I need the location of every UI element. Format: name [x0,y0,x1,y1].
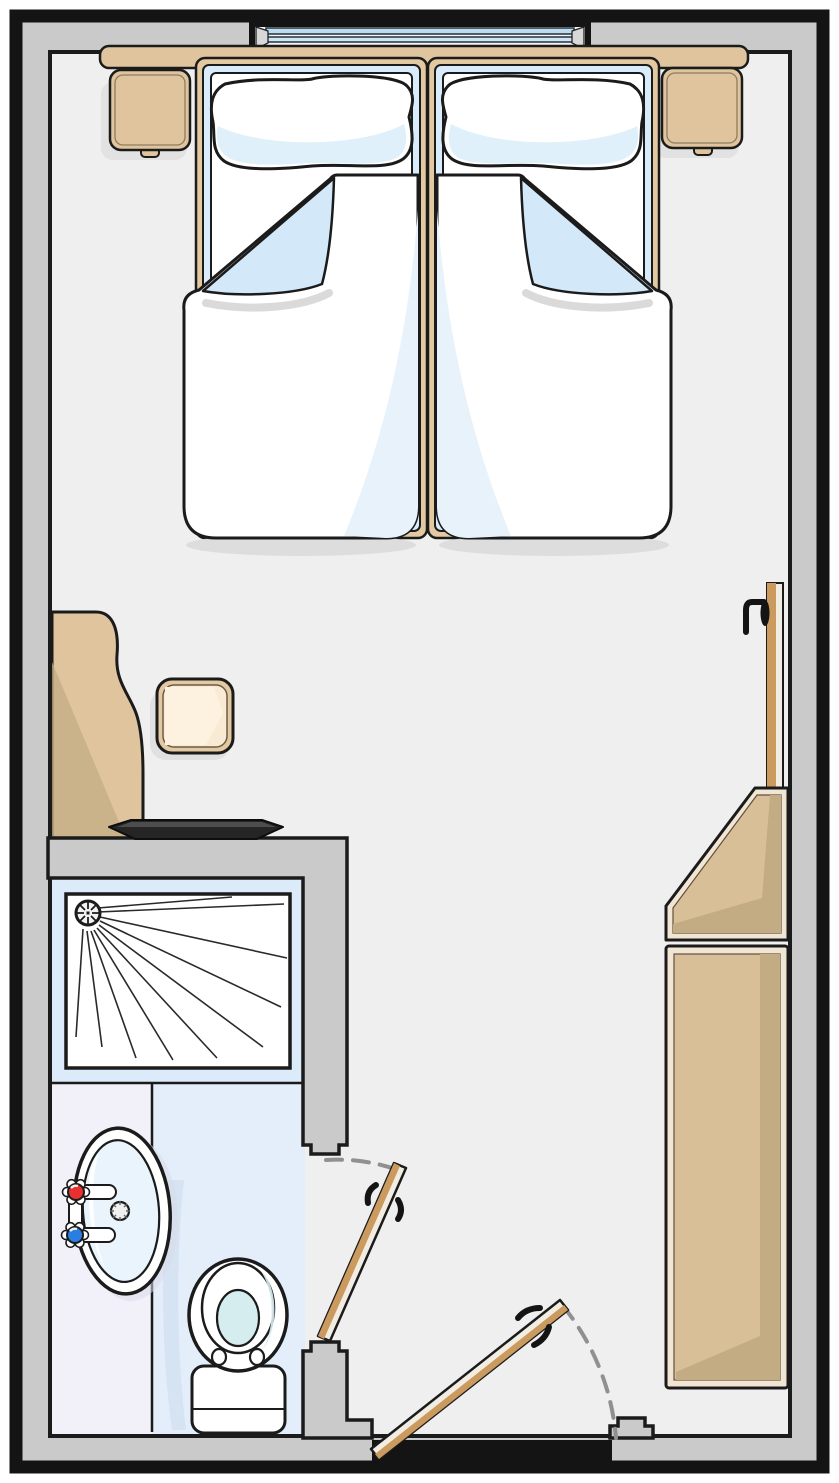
entrance-threshold [372,1440,612,1466]
toilet-tank [192,1366,285,1433]
floor-plan [0,0,839,1483]
toilet-water [217,1290,259,1346]
stool [150,679,233,760]
nightstand-right [653,68,742,158]
window-glass-pane [266,28,574,34]
wardrobe [666,946,788,1388]
floor-plan-canvas [0,0,839,1483]
nightstand-left [101,70,190,160]
tap-knob [62,1223,89,1248]
shower-drain-icon [76,901,100,925]
bathroom [52,878,305,1434]
tv [109,820,283,839]
toilet [189,1259,287,1433]
shower-tray [66,894,290,1068]
twin-bed-right [428,58,671,556]
tap-knob [63,1180,90,1205]
door-handle-icon [398,1200,401,1219]
sink-drain-icon [110,1201,130,1221]
twin-bed-left [184,58,427,556]
window-outer-frame [254,10,586,27]
window-glass-pane [266,37,574,42]
